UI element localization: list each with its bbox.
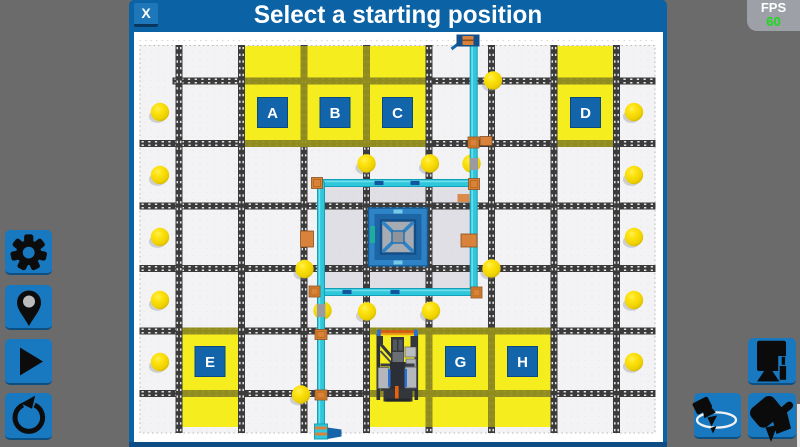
- svg-text:H: H: [517, 354, 528, 371]
- svg-text:A: A: [267, 105, 278, 122]
- svg-text:E: E: [204, 354, 214, 371]
- svg-text:G: G: [454, 354, 466, 371]
- svg-text:C: C: [392, 105, 403, 122]
- svg-text:D: D: [580, 105, 591, 122]
- svg-text:B: B: [329, 105, 340, 122]
